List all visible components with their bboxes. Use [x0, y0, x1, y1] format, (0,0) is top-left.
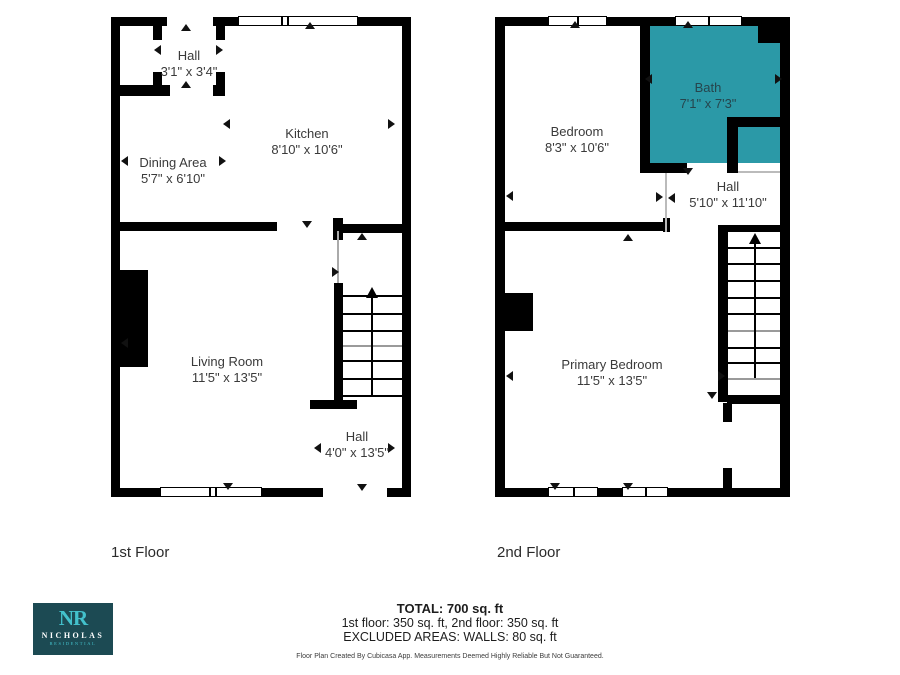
window-mullion: [573, 488, 575, 496]
wall: [727, 117, 738, 173]
door-marker: [181, 24, 191, 31]
wall: [727, 395, 780, 404]
wall: [640, 163, 687, 173]
chimney-block: [120, 270, 148, 367]
floor-areas-text: 1st floor: 350 sq. ft, 2nd floor: 350 sq…: [0, 616, 900, 630]
door-marker: [357, 484, 367, 491]
room-dims: 7'1" x 7'3": [680, 96, 737, 112]
window-mullion: [215, 488, 217, 496]
room-label-hall-lower: Hall 4'0" x 13'5": [325, 429, 389, 461]
door-opening: [323, 488, 387, 497]
room-label-kitchen: Kitchen 8'10" x 10'6": [271, 126, 342, 158]
wall: [758, 26, 780, 43]
door-marker: [388, 443, 395, 453]
room-name: Living Room: [191, 354, 263, 370]
first-floor-plan: Hall 3'1" x 3'4" Kitchen 8'10" x 10'6" D…: [110, 10, 412, 502]
stair-direction-line: [754, 243, 756, 378]
wall: [120, 222, 277, 231]
wall: [310, 400, 357, 409]
chimney-block: [505, 293, 533, 331]
nicholas-residential-logo: NR NICHOLAS RESIDENTIAL: [33, 603, 113, 655]
room-name: Hall: [325, 429, 389, 445]
door-marker: [181, 81, 191, 88]
room-label-primary-bedroom: Primary Bedroom 11'5" x 13'5": [561, 357, 662, 389]
door-marker: [683, 168, 693, 175]
door-marker: [623, 483, 633, 490]
room-name: Bedroom: [545, 124, 609, 140]
wall: [162, 85, 170, 96]
door-marker: [302, 221, 312, 228]
room-name: Kitchen: [271, 126, 342, 142]
stair-up-arrow-icon: [749, 233, 761, 244]
door-marker: [623, 234, 633, 241]
room-label-hall: Hall 5'10" x 11'10": [689, 179, 767, 211]
door-marker: [656, 192, 663, 202]
door-marker: [718, 371, 725, 381]
room-dims: 5'7" x 6'10": [139, 171, 206, 187]
wall: [722, 225, 780, 232]
stair-direction-line: [371, 297, 373, 395]
doorway-line: [665, 173, 667, 232]
room-name: Hall: [161, 48, 218, 64]
window-mullion: [645, 488, 647, 496]
room-dims: 8'3" x 10'6": [545, 140, 609, 156]
room-dims: 5'10" x 11'10": [689, 195, 767, 211]
room-label-bedroom: Bedroom 8'3" x 10'6": [545, 124, 609, 156]
door-marker: [219, 156, 226, 166]
second-floor-caption: 2nd Floor: [497, 544, 560, 561]
room-dims: 3'1" x 3'4": [161, 64, 218, 80]
wall: [334, 283, 343, 409]
room-label-dining-area: Dining Area 5'7" x 6'10": [139, 155, 206, 187]
wall: [111, 85, 162, 96]
door-marker: [223, 483, 233, 490]
wall: [213, 85, 225, 96]
room-label-bath: Bath 7'1" x 7'3": [680, 80, 737, 112]
wall: [780, 17, 790, 497]
window-mullion: [708, 17, 710, 25]
room-label-hall-entry: Hall 3'1" x 3'4": [161, 48, 218, 80]
door-marker: [668, 193, 675, 203]
door-marker: [570, 21, 580, 28]
door-marker: [332, 267, 339, 277]
door-marker: [121, 338, 128, 348]
excluded-areas-text: EXCLUDED AREAS: WALLS: 80 sq. ft: [0, 630, 900, 644]
window: [160, 487, 262, 497]
door-marker: [121, 156, 128, 166]
disclaimer-text: Floor Plan Created By Cubicasa App. Meas…: [0, 653, 900, 660]
window: [238, 16, 358, 26]
wall: [333, 224, 402, 233]
room-name: Primary Bedroom: [561, 357, 662, 373]
second-floor-plan: Bedroom 8'3" x 10'6" Bath 7'1" x 7'3" Ha…: [495, 10, 792, 502]
window-mullion: [287, 17, 289, 25]
wall: [402, 17, 411, 497]
room-dims: 8'10" x 10'6": [271, 142, 342, 158]
closet-opening-line: [738, 171, 780, 173]
total-area-text: TOTAL: 700 sq. ft: [0, 601, 900, 616]
room-dims: 4'0" x 13'5": [325, 445, 389, 461]
room-label-living-room: Living Room 11'5" x 13'5": [191, 354, 263, 386]
door-marker: [305, 22, 315, 29]
room-dims: 11'5" x 13'5": [191, 370, 263, 386]
wall: [723, 403, 732, 422]
door-marker: [683, 21, 693, 28]
first-floor-caption: 1st Floor: [111, 544, 169, 561]
stair-up-arrow-icon: [366, 287, 378, 298]
wall: [495, 17, 505, 497]
door-marker: [506, 191, 513, 201]
door-marker: [645, 74, 652, 84]
door-marker: [223, 119, 230, 129]
room-dims: 11'5" x 13'5": [561, 373, 662, 389]
stair-tread: [728, 378, 780, 380]
window-mullion: [209, 488, 211, 496]
window-mullion: [281, 17, 283, 25]
area-summary: TOTAL: 700 sq. ft 1st floor: 350 sq. ft,…: [0, 601, 900, 644]
wall: [505, 222, 668, 231]
room-name: Bath: [680, 80, 737, 96]
logo-monogram: NR: [33, 607, 113, 629]
door-marker: [506, 371, 513, 381]
wall: [640, 17, 650, 173]
logo-subtitle: RESIDENTIAL: [33, 641, 113, 647]
wall: [723, 468, 732, 488]
room-name: Dining Area: [139, 155, 206, 171]
door-marker: [388, 119, 395, 129]
door-marker: [550, 483, 560, 490]
door-marker: [707, 392, 717, 399]
door-marker: [314, 443, 321, 453]
room-name: Hall: [689, 179, 767, 195]
logo-name: NICHOLAS: [33, 631, 113, 641]
stair-tread: [343, 395, 402, 397]
door-marker: [357, 233, 367, 240]
door-marker: [775, 74, 782, 84]
